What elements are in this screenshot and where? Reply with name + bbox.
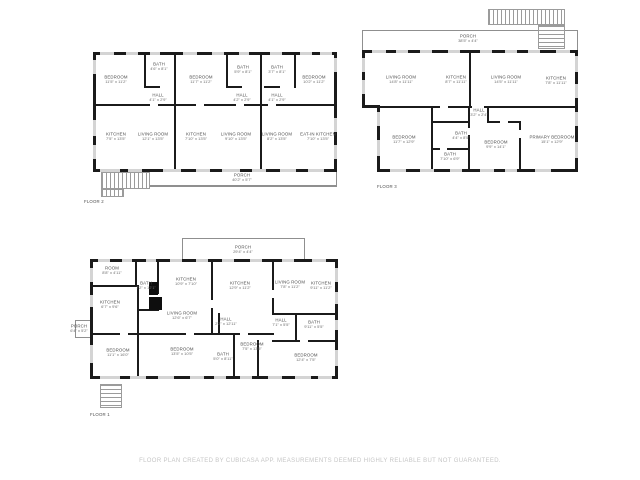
room-label-porch: PORCH29'4" x 4'4" (233, 245, 253, 256)
floor-2-door-opening (236, 104, 244, 106)
room-dimensions: 10'9" x 7'10" (175, 282, 197, 287)
floor-1-window (282, 259, 294, 262)
room-label-hall: HALL7'1" x 5'5" (272, 318, 290, 329)
room-label-kitchen: KITCHEN10'9" x 7'10" (175, 277, 197, 288)
room-label-room: ROOM8'8" x 4'11" (102, 266, 122, 277)
floor-2-wall (174, 55, 176, 169)
room-label-eat-in-kitchen: EAT-IN KITCHEN7'10" x 13'5" (300, 132, 336, 143)
room-dimensions: 9'11" x 11'2" (310, 286, 332, 291)
room-dimensions: 8'2" x 13'5" (262, 137, 292, 142)
floor-3-window (575, 56, 578, 72)
floor-2-window (222, 169, 240, 172)
room-label-living-room: LIVING ROOM12'1" x 13'5" (138, 132, 168, 143)
floor-1-porch-outline (182, 238, 305, 239)
room-label-bedroom: BEDROOM11'7" x 12'9" (392, 135, 415, 146)
floor-3-porch-outline (362, 30, 363, 50)
floor-2-window (308, 169, 324, 172)
room-dimensions: 4'1" x 2'9" (149, 98, 167, 103)
floor-1-wall (233, 333, 235, 377)
floor-1-window (240, 376, 252, 379)
floor-2-window (212, 52, 224, 55)
floor-2-window (163, 169, 181, 172)
room-label-bedroom: BEDROOM13'5" x 10'5" (170, 347, 193, 358)
floor-2-window (196, 169, 210, 172)
floor-3-door-opening (440, 106, 448, 108)
floor-2-stairs (101, 172, 150, 189)
room-label-kitchen: KITCHEN8'7" x 11'11" (445, 75, 467, 86)
room-label-bath: BATH4'6" x 8'1" (150, 62, 168, 73)
room-label-kitchen: KITCHEN6'7" x 9'6" (100, 300, 120, 311)
room-dimensions: 4'2" x 2'9" (233, 98, 251, 103)
room-dimensions: 14'8" x 11'11" (386, 80, 416, 85)
room-dimensions: 7'10" x 13'5" (185, 137, 207, 142)
room-dimensions: 14'5" x 11'11" (491, 80, 521, 85)
floor-2-window (126, 52, 138, 55)
room-label-hall: HALL3'2" x 2'4" (470, 108, 488, 119)
floor-3-window (390, 169, 406, 172)
floor-1-wall (295, 313, 297, 342)
room-dimensions: 8'7" x 11'11" (445, 80, 467, 85)
floor-3-window (480, 50, 492, 53)
room-dimensions: 15'1" x 12'9" (529, 140, 574, 145)
floor-2-stairs (101, 189, 124, 197)
floor-3-wall (433, 121, 468, 123)
floor-1-window (268, 376, 282, 379)
floor-3-window (362, 80, 365, 94)
floor-3-window (420, 169, 434, 172)
floor-3-window (575, 142, 578, 158)
room-dimensions: 12'6" x 6'7" (167, 316, 197, 321)
room-label-hall: HALL4'2" x 2'9" (233, 93, 251, 104)
room-dimensions: 29'4" x 4'4" (233, 250, 253, 255)
floor-3-window (575, 84, 578, 98)
room-label-living-room: LIVING ROOM7'8" x 11'2" (275, 280, 305, 291)
room-label-bedroom: BEDROOM10'2" x 11'2" (302, 75, 325, 86)
floor-1-door-opening (300, 340, 308, 342)
room-dimensions: 7'10" x 6'9" (440, 157, 460, 162)
floor-3-window (575, 112, 578, 126)
floor-2-window (183, 52, 197, 55)
floor-2-door-opening (268, 104, 276, 106)
floor-1-window (122, 259, 132, 262)
floor-1-window (90, 295, 93, 307)
floor-2-window (150, 52, 160, 55)
room-label-bath: BATH9'11" x 5'5" (304, 320, 324, 331)
room-dimensions: 6'7" x 9'6" (100, 305, 120, 310)
floor-1-window (318, 376, 332, 379)
floor-1-window (335, 268, 338, 282)
floor-plan-canvas: FLOOR PLAN CREATED BY CUBICASA APP. MEAS… (0, 0, 640, 480)
floor-1-window (130, 376, 146, 379)
floor-3-window (505, 50, 517, 53)
floor-3-window (448, 50, 460, 53)
floor-1-window (335, 292, 338, 304)
floor-1-window (170, 259, 182, 262)
room-dimensions: 7'5" x 13'5" (106, 137, 126, 142)
room-dimensions: 7'8" x 11'11" (545, 81, 567, 86)
floor-1-window (250, 259, 262, 262)
floor-1-wall (90, 285, 137, 287)
floor-2-window (320, 52, 332, 55)
floor-1-name-label: FLOOR 1 (90, 413, 110, 417)
floor-2-window (93, 120, 96, 136)
floor-2-name-label: FLOOR 2 (84, 200, 104, 204)
floor-2-window (280, 169, 296, 172)
floor-2-porch-outline (336, 172, 337, 186)
room-dimensions: 10'2" x 11'2" (302, 80, 325, 85)
floor-3-window (505, 169, 517, 172)
room-label-primary-bedroom: PRIMARY BEDROOM15'1" x 12'9" (529, 135, 574, 146)
room-dimensions: 9'9" x 14'1" (484, 145, 507, 150)
room-dimensions: 38'5" x 4'4" (458, 39, 478, 44)
floor-1-window (98, 259, 110, 262)
floor-3-window (556, 50, 570, 53)
room-dimensions: 5'0" x 8'11" (213, 357, 233, 362)
room-label-bedroom: BEDROOM9'9" x 14'1" (484, 140, 507, 151)
room-label-living-room: LIVING ROOM12'6" x 6'7" (167, 311, 197, 322)
floor-2-wall (260, 55, 262, 169)
room-label-bath: BATH5'0" x 8'11" (213, 352, 233, 363)
room-label-porch: PORCH6'4" x 5'2" (70, 324, 88, 335)
room-dimensions: 11'7" x 12'9" (392, 140, 415, 145)
room-dimensions: 6'4" x 5'2" (70, 329, 88, 334)
floor-2-door-opening (196, 104, 204, 106)
room-dimensions: 3'2" x 2'4" (470, 113, 488, 118)
floor-3-wall (519, 121, 521, 169)
floor-1-window (190, 376, 204, 379)
floor-3-window (450, 169, 462, 172)
floor-2-door-opening (160, 86, 166, 88)
floor-1-window (312, 259, 326, 262)
floor-1-wall (272, 313, 337, 315)
floor-3-wall (433, 148, 468, 150)
room-label-hall: HALL2'2" x 12'11" (215, 317, 237, 328)
room-dimensions: 12'4" x 7'5" (294, 358, 317, 363)
floor-2-window (334, 58, 337, 72)
room-label-living-room: LIVING ROOM14'8" x 11'11" (386, 75, 416, 86)
room-label-kitchen: KITCHEN7'10" x 13'5" (185, 132, 207, 143)
floor-2-door-opening (242, 86, 248, 88)
floor-2-window (100, 52, 114, 55)
room-dimensions: 9'11" x 5'5" (304, 325, 324, 330)
room-label-bath: BATH4'4" x 8'5" (452, 131, 470, 142)
floor-2-door-opening (150, 104, 158, 106)
floor-1-wall (272, 259, 274, 315)
floor-2-wall (144, 52, 146, 88)
floor-1-door-opening (120, 333, 128, 335)
floor-1-door-opening (186, 333, 194, 335)
floor-1-porch-outline (75, 320, 90, 321)
floor-2-window (93, 145, 96, 159)
floor-3-stairs (488, 9, 565, 25)
room-dimensions: 4'4" x 8'5" (452, 136, 470, 141)
room-dimensions: 7'10" x 13'5" (300, 137, 336, 142)
room-label-living-room: LIVING ROOM8'2" x 13'5" (262, 132, 292, 143)
floor-2-wall (93, 104, 337, 106)
floor-3-door-opening (519, 130, 521, 138)
room-dimensions: 13'5" x 10'5" (170, 352, 193, 357)
room-dimensions: 2'2" x 12'11" (215, 322, 237, 327)
room-label-bedroom: BEDROOM12'4" x 7'5" (294, 353, 317, 364)
floor-1-window (158, 376, 174, 379)
floor-2-window (300, 52, 312, 55)
floor-3-window (396, 50, 408, 53)
disclaimer-text: FLOOR PLAN CREATED BY CUBICASA APP. MEAS… (0, 458, 640, 464)
floor-1-window (214, 376, 226, 379)
room-label-bedroom: BEDROOM7'5" x 13'5" (240, 342, 263, 353)
floor-3-window (420, 50, 432, 53)
floor-3-window (377, 140, 380, 156)
floor-1-wall (137, 285, 139, 378)
floor-3-wall (431, 108, 433, 169)
floor-1-porch-outline (75, 337, 90, 338)
floor-2-door-opening (280, 86, 286, 88)
room-label-porch: PORCH38'5" x 4'4" (458, 34, 478, 45)
floor-1-window (295, 376, 311, 379)
floor-1-solid-block (149, 297, 162, 310)
floor-1-stairs (100, 384, 122, 408)
floor-3-door-opening (500, 121, 508, 123)
floor-2-wall (226, 52, 228, 88)
room-label-kitchen: KITCHEN7'8" x 11'11" (545, 76, 567, 87)
floor-3-porch-outline (577, 30, 578, 50)
floor-3-wall (469, 53, 471, 106)
room-dimensions: 7'5" x 13'5" (240, 347, 263, 352)
floor-3-name-label: FLOOR 3 (377, 185, 397, 189)
floor-1-porch-outline (304, 238, 305, 259)
floor-2-porch-outline (148, 185, 337, 187)
room-label-living-room: LIVING ROOM14'5" x 11'11" (491, 75, 521, 86)
floor-1-window (196, 259, 208, 262)
floor-2-window (239, 52, 249, 55)
floor-3-window (362, 58, 365, 72)
room-dimensions: 4'1" x 2'9" (268, 98, 286, 103)
room-label-bath: BATH5'9" x 8'1" (234, 65, 252, 76)
room-dimensions: 8'8" x 4'11" (102, 271, 122, 276)
floor-1-door-opening (240, 333, 248, 335)
floor-1-door-opening (272, 290, 274, 298)
floor-1-window (335, 350, 338, 366)
room-label-kitchen: KITCHEN12'9" x 11'2" (229, 281, 251, 292)
floor-1-window (100, 376, 120, 379)
room-dimensions: 12'1" x 13'5" (138, 137, 168, 142)
room-label-porch: PORCH40'2" x 5'7" (232, 173, 252, 184)
floor-3-window (372, 50, 386, 53)
floor-1-window (90, 268, 93, 282)
floor-2-window (270, 52, 282, 55)
room-label-bedroom: BEDROOM11'7" x 11'2" (189, 75, 212, 86)
room-dimensions: 11'1" x 16'0" (106, 353, 129, 358)
room-dimensions: 3'7" x 8'1" (268, 70, 286, 75)
floor-3-window (480, 169, 494, 172)
floor-1-wall (211, 259, 213, 335)
room-dimensions: 11'7" x 11'2" (189, 80, 212, 85)
room-label-living-room: LIVING ROOM9'10" x 13'5" (221, 132, 251, 143)
room-dimensions: 12'9" x 11'2" (229, 286, 251, 291)
floor-2-window (252, 169, 266, 172)
floor-3-window (528, 50, 540, 53)
room-dimensions: 5'9" x 8'1" (234, 70, 252, 75)
room-label-bath: BATH7'2" x 12'1" (136, 281, 156, 292)
room-label-kitchen: KITCHEN7'5" x 13'5" (106, 132, 126, 143)
room-dimensions: 7'8" x 11'2" (275, 285, 305, 290)
room-label-bath: BATH3'7" x 8'1" (268, 65, 286, 76)
room-label-bedroom: BEDROOM11'5" x 11'2" (104, 75, 127, 86)
room-dimensions: 9'10" x 13'5" (221, 137, 251, 142)
room-label-bedroom: BEDROOM11'1" x 16'0" (106, 348, 129, 359)
floor-3-window (377, 112, 380, 126)
floor-3-window (535, 169, 551, 172)
floor-3-stairs (538, 25, 565, 49)
room-dimensions: 4'6" x 8'1" (150, 67, 168, 72)
room-dimensions: 7'2" x 12'1" (136, 286, 156, 291)
floor-2-window (334, 118, 337, 132)
floor-2-window (93, 60, 96, 74)
floor-2-wall (294, 52, 296, 88)
floor-1-door-opening (211, 300, 213, 308)
floor-3-door-opening (440, 148, 447, 150)
floor-1-window (222, 259, 234, 262)
floor-1-window (335, 320, 338, 330)
floor-1-porch-outline (182, 238, 183, 259)
room-label-hall: HALL4'1" x 2'9" (268, 93, 286, 104)
floor-1-window (146, 259, 156, 262)
room-label-hall: HALL4'1" x 2'9" (149, 93, 167, 104)
floor-1-window (90, 345, 93, 363)
room-label-kitchen: KITCHEN9'11" x 11'2" (310, 281, 332, 292)
floor-2-window (334, 145, 337, 159)
room-dimensions: 40'2" x 5'7" (232, 178, 252, 183)
room-label-bath: BATH7'10" x 6'9" (440, 152, 460, 163)
room-dimensions: 7'1" x 5'5" (272, 323, 290, 328)
room-dimensions: 11'5" x 11'2" (104, 80, 127, 85)
